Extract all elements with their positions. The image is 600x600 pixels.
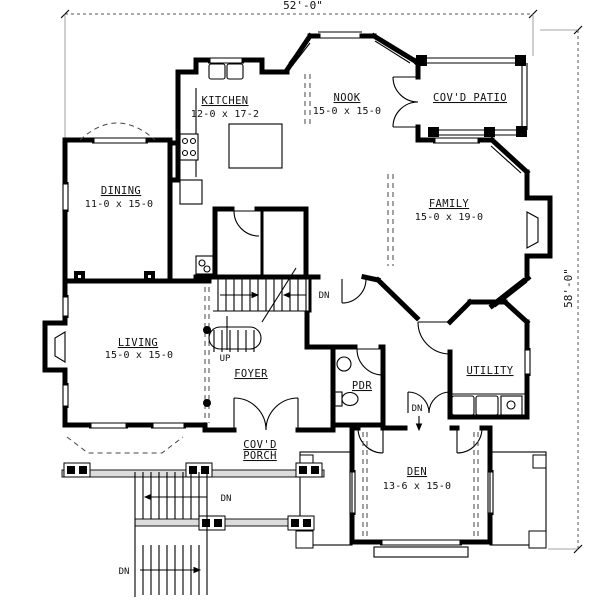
mud-sink bbox=[196, 256, 213, 274]
living-label: LIVING bbox=[118, 337, 158, 349]
stair-labels: UP DN DN DN DN bbox=[119, 291, 423, 577]
fixtures bbox=[55, 64, 538, 415]
living-firebox bbox=[55, 332, 65, 362]
dining-label: DINING bbox=[101, 185, 141, 197]
den-label: DEN bbox=[407, 466, 427, 478]
covd-patio-label: COV'D PATIO bbox=[433, 92, 507, 104]
utility-label: UTILITY bbox=[466, 365, 513, 377]
family-firebox bbox=[527, 212, 538, 248]
exterior-stairs bbox=[135, 472, 207, 597]
foyer-label: FOYER bbox=[234, 368, 268, 380]
family-label: FAMILY bbox=[429, 198, 470, 210]
overall-height-dimension: 58'-0" bbox=[562, 268, 575, 308]
kitchen-sink bbox=[209, 64, 243, 79]
range-stove bbox=[180, 134, 198, 160]
nook-size: 15-0 x 15-0 bbox=[313, 106, 381, 117]
dn-label-den-doors: DN bbox=[412, 404, 423, 414]
toilet bbox=[335, 392, 358, 406]
floor-plan-page: 52'-0" 58'-0" bbox=[0, 0, 600, 600]
up-label: UP bbox=[220, 354, 231, 364]
nook-label: NOOK bbox=[334, 92, 361, 104]
dn-label-lower-exterior-stair: DN bbox=[119, 567, 130, 577]
overall-width-dimension: 52'-0" bbox=[283, 0, 323, 12]
pdr-sink bbox=[337, 357, 351, 371]
post-pair bbox=[296, 463, 322, 477]
dining-size: 11-0 x 15-0 bbox=[85, 199, 153, 210]
column bbox=[203, 399, 211, 407]
refrigerator bbox=[180, 180, 202, 204]
post-pair bbox=[199, 516, 225, 530]
family-size: 15-0 x 19-0 bbox=[415, 212, 483, 223]
kitchen-island bbox=[229, 124, 282, 168]
interior-stair bbox=[209, 268, 310, 352]
post-pair bbox=[288, 516, 314, 530]
pdr-label: PDR bbox=[352, 380, 372, 392]
covd-porch-label-line2: PORCH bbox=[243, 450, 277, 462]
dn-label-interior-stair: DN bbox=[319, 291, 330, 301]
kitchen-size: 12-0 x 17-2 bbox=[191, 109, 259, 120]
post-pair bbox=[64, 463, 90, 477]
kitchen-label: KITCHEN bbox=[201, 95, 248, 107]
floor-plan-drawing: 52'-0" 58'-0" bbox=[0, 0, 600, 600]
den-size: 13-6 x 15-0 bbox=[383, 481, 451, 492]
dn-label-upper-exterior-stair: DN bbox=[221, 494, 232, 504]
living-size: 15-0 x 15-0 bbox=[105, 350, 173, 361]
laundry-appliances bbox=[450, 394, 527, 415]
